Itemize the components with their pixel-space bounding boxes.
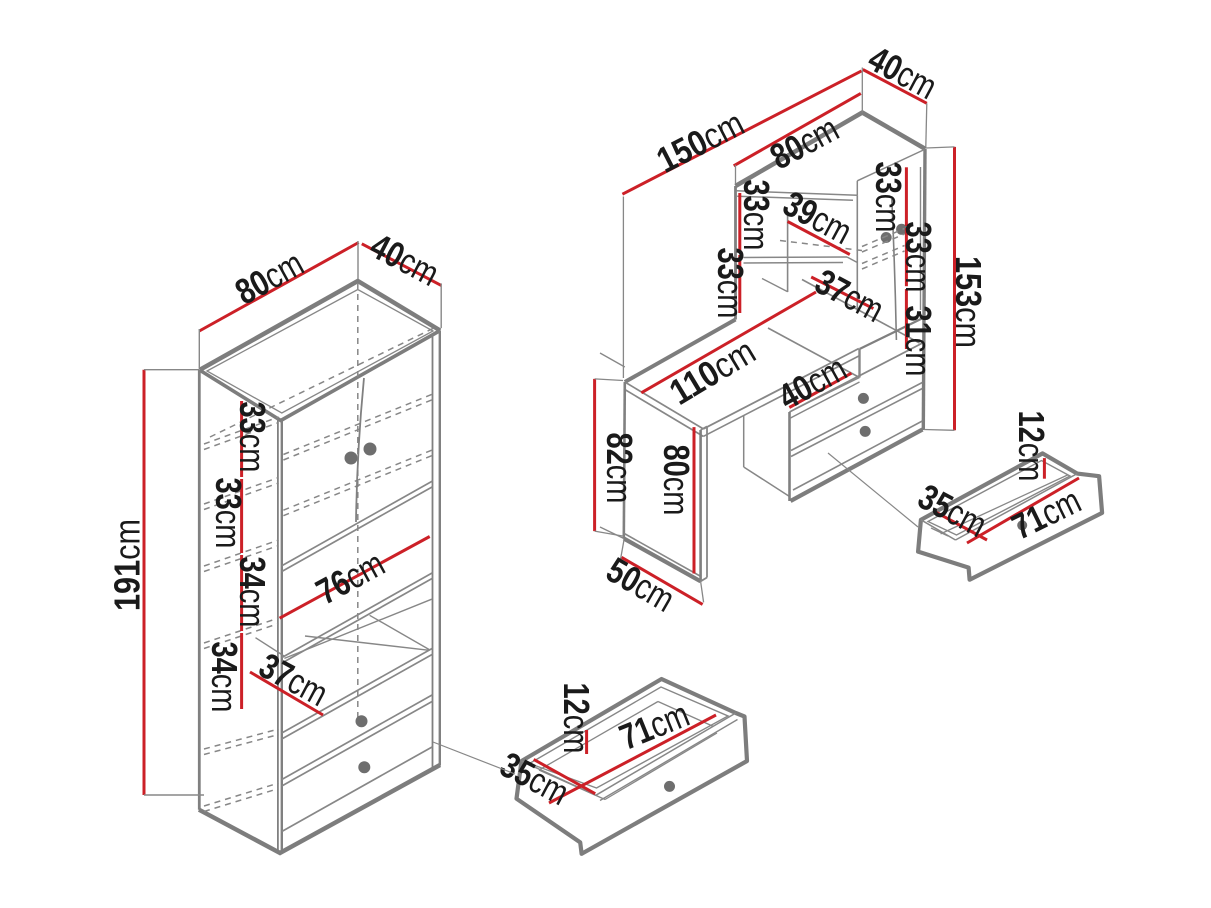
svg-text:153cm: 153cm <box>948 256 989 348</box>
svg-text:34cm: 34cm <box>232 557 273 628</box>
svg-text:12cm: 12cm <box>1011 411 1052 482</box>
svg-text:191cm: 191cm <box>107 519 148 611</box>
svg-text:80cm: 80cm <box>656 445 697 516</box>
svg-text:82cm: 82cm <box>599 433 640 504</box>
svg-text:33cm: 33cm <box>898 222 939 293</box>
svg-text:12cm: 12cm <box>556 683 597 754</box>
svg-text:34cm: 34cm <box>204 642 245 713</box>
svg-text:33cm: 33cm <box>736 180 777 251</box>
svg-text:31cm: 31cm <box>898 306 939 377</box>
svg-text:33cm: 33cm <box>710 248 751 319</box>
svg-text:33cm: 33cm <box>208 478 249 549</box>
svg-text:33cm: 33cm <box>232 402 273 473</box>
